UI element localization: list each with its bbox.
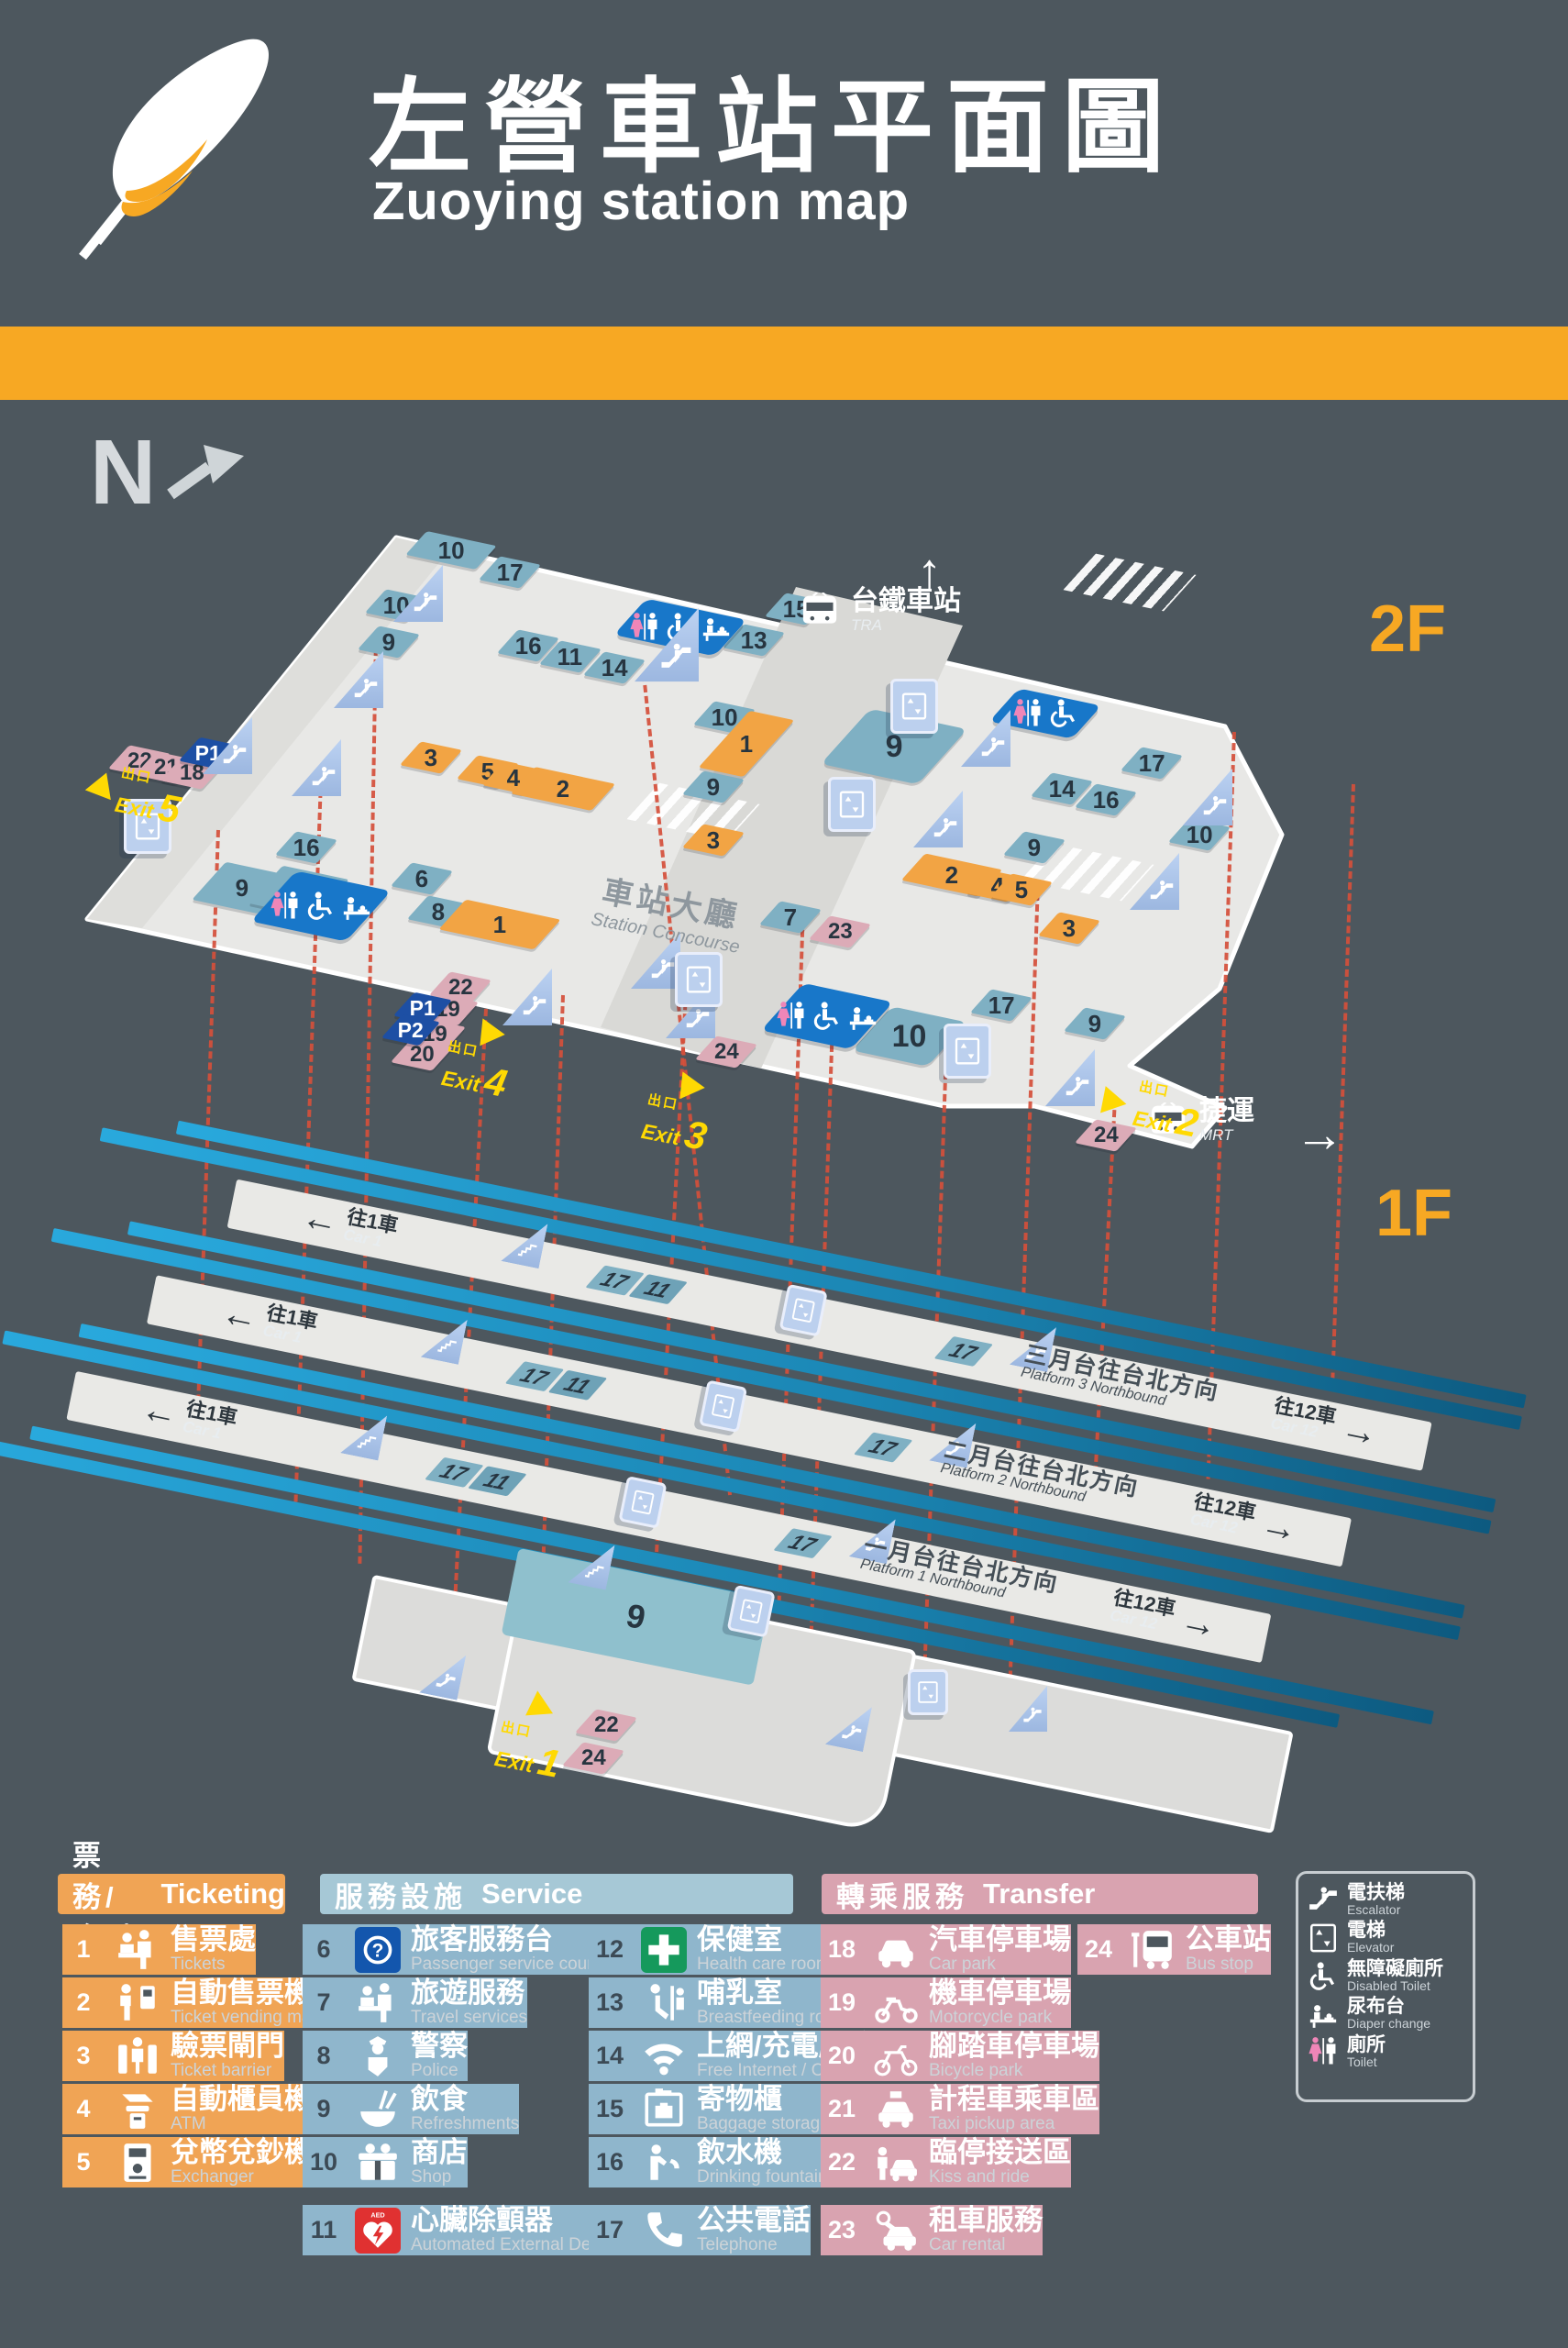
legend-number-badge: 8	[303, 2035, 345, 2077]
legend-number-badge: 13	[589, 1982, 631, 2024]
tra-direction-arrow: ↑	[917, 543, 942, 600]
toilet-icon	[1308, 2036, 1339, 2067]
car1-direction-label: ← 往1車Car 1	[218, 1294, 319, 1350]
legend-section-header: 票務/金融Ticketing	[58, 1874, 285, 1914]
legend-item: 15 寄物櫃Baggage storage	[589, 2084, 830, 2134]
rail-track	[127, 1221, 1496, 1512]
legend-icon	[355, 2208, 401, 2254]
legend-item: 9 飲食Refreshments	[303, 2084, 519, 2134]
car12-direction-label: 往12車Car 12 →	[1188, 1491, 1300, 1549]
legend-item: 11 心臟除顫器Automated External Defibrillator	[303, 2205, 657, 2255]
stairs-icon	[421, 1312, 468, 1364]
legend-number-badge: 21	[821, 2088, 863, 2131]
legend-number-badge: 18	[821, 1929, 863, 1971]
elevator-icon	[699, 1379, 747, 1433]
escalator-icon	[1010, 1320, 1056, 1372]
train-icon	[1148, 1102, 1188, 1139]
legend-icon	[873, 2087, 919, 2132]
mrt-link: 捷運MRT	[1148, 1097, 1254, 1145]
elevator-icon	[908, 1669, 948, 1715]
legend-icon	[355, 2140, 401, 2186]
legend-icon	[355, 2033, 401, 2079]
legend-number-badge: 12	[589, 1929, 631, 1971]
legend-number-badge: 7	[303, 1982, 345, 2024]
elevator-icon	[779, 1284, 828, 1337]
legend-item: 19 機車停車場Motorcycle park	[821, 1977, 1071, 2028]
escalator-icon	[849, 1512, 896, 1564]
legend-icon	[873, 2208, 919, 2254]
legend-icon	[115, 2087, 160, 2132]
legend-item: 10 商店Shop	[303, 2137, 468, 2187]
stairs-icon	[340, 1408, 387, 1460]
legend-number-badge: 23	[821, 2210, 863, 2252]
legend-section-header: 服務設施Service	[320, 1874, 793, 1914]
map-tile: 17	[425, 1457, 484, 1488]
legend-icon	[115, 1980, 160, 2026]
legend-item: 20 腳踏車停車場Bicycle park	[821, 2031, 1099, 2081]
left-arrow-icon: ←	[138, 1390, 181, 1434]
legend-number-badge: 2	[62, 1982, 105, 2024]
legend-icon	[355, 2087, 401, 2132]
legend-number-badge: 20	[821, 2035, 863, 2077]
platform-name: 三月台往台北方向Platform 3 Northbound	[1020, 1342, 1221, 1420]
floor-label-1f: 1F	[1375, 1176, 1452, 1251]
accent-band	[0, 327, 1568, 400]
legend-icon	[641, 1980, 687, 2026]
legend-number-badge: 5	[62, 2142, 105, 2184]
legend-item: 17 公共電話Telephone	[589, 2205, 811, 2255]
legend-item: 12 保健室Health care room	[589, 1924, 831, 1975]
zuoying-station-map-page: 左營車站平面圖 Zuoying station map N 2F 1F	[0, 0, 1568, 2348]
legend-number-badge: 15	[589, 2088, 631, 2131]
legend-number-badge: 16	[589, 2142, 631, 2184]
legend-icon	[641, 1927, 687, 1973]
legend-item: 6 旅客服務台Passenger service counter	[303, 1924, 617, 1975]
map-tile: 11	[628, 1274, 688, 1304]
page-subtitle: Zuoying station map	[372, 171, 910, 232]
legend-number-badge: 10	[303, 2142, 345, 2184]
north-arrow-icon	[161, 443, 246, 504]
legend-number-badge: 11	[303, 2210, 345, 2252]
legend-item: 3 驗票閘門Ticket barrier	[62, 2031, 284, 2081]
legend-item: 2 自動售票機Ticket vending machine	[62, 1977, 353, 2028]
legend-item: 16 飲水機Drinking fountain	[589, 2137, 828, 2187]
right-arrow-icon: →	[1257, 1506, 1300, 1549]
floor-label-2f: 2F	[1369, 592, 1446, 667]
legend-number-badge: 19	[821, 1982, 863, 2024]
north-indicator: N	[90, 420, 246, 526]
legend-item: 21 計程車乘車區Taxi pickup area	[821, 2084, 1099, 2134]
platform: ← 往1車Car 1 17 11 17 三月台往台北方向Platform 3 N…	[227, 1180, 1432, 1471]
legend-icon	[115, 1927, 160, 1973]
legend-number-badge: 22	[821, 2142, 863, 2184]
legend-icon	[641, 2208, 687, 2254]
diaper-change-icon	[1308, 1999, 1339, 2030]
legend-number-badge: 1	[62, 1929, 105, 1971]
north-label: N	[90, 420, 156, 526]
legend-number-badge: 14	[589, 2035, 631, 2077]
legend-icon	[873, 1980, 919, 2026]
legend-item: 5 兌幣兌鈔機Exchanger	[62, 2137, 313, 2187]
platform-name: 一月台往台北方向Platform 1 Northbound	[858, 1534, 1060, 1611]
legend-number-badge: 4	[62, 2088, 105, 2131]
platform-name: 二月台往台北方向Platform 2 Northbound	[939, 1438, 1141, 1516]
legend-number-badge: 9	[303, 2088, 345, 2131]
legend-number-badge: 17	[589, 2210, 631, 2252]
map-tile: 11	[548, 1370, 608, 1401]
legend-item: 22 臨停接送區Kiss and ride	[821, 2137, 1071, 2187]
escalator-icon	[1308, 1885, 1339, 1916]
left-arrow-icon: ←	[299, 1198, 342, 1241]
left-arrow-icon: ←	[218, 1294, 261, 1337]
legend-item: 13 哺乳室Breastfeeding room	[589, 1977, 849, 2028]
rail-track	[79, 1324, 1465, 1619]
legend-icon	[115, 2033, 160, 2079]
car1-direction-label: ← 往1車Car 1	[138, 1390, 238, 1445]
legend-icon	[115, 2140, 160, 2186]
legend-icon	[873, 2033, 919, 2079]
right-arrow-icon: →	[1338, 1410, 1381, 1453]
platform: ← 往1車Car 1 17 11 17 二月台往台北方向Platform 2 N…	[147, 1275, 1352, 1567]
legend-icon	[641, 2033, 687, 2079]
legend-number-badge: 3	[62, 2035, 105, 2077]
map-tile: 17	[585, 1266, 645, 1296]
legend-item: 8 警察Police	[303, 2031, 468, 2081]
elevator-icon	[618, 1476, 667, 1529]
legend-item: 4 自動櫃員機ATM	[62, 2084, 313, 2134]
hsr-train-logo	[72, 26, 292, 264]
map-tile: 17	[773, 1528, 833, 1558]
legend-icon	[641, 2140, 687, 2186]
map-tile: 17	[854, 1433, 913, 1463]
legend-icon	[873, 2140, 919, 2186]
car12-direction-label: 往12車Car 12 →	[1269, 1395, 1381, 1453]
rail-track	[51, 1228, 1492, 1534]
map-tile: 11	[468, 1466, 527, 1496]
stairs-icon	[501, 1216, 547, 1268]
legend-item: 1 售票處Tickets	[62, 1924, 256, 1975]
legend-icon	[355, 1980, 401, 2026]
map-tile: 17	[934, 1336, 994, 1367]
legend-icon	[355, 1927, 401, 1973]
map-tile: 17	[505, 1361, 565, 1391]
legend-number-badge: 6	[303, 1929, 345, 1971]
legend-item: 23 租車服務Car rental	[821, 2205, 1043, 2255]
escalator-icon	[929, 1415, 976, 1467]
mrt-direction-arrow: →	[1295, 1106, 1344, 1163]
legend-item: 14 上網/充電服務Free Internet / Charging	[589, 2031, 882, 2081]
legend-icon	[641, 2087, 687, 2132]
elevator-icon	[1308, 1922, 1339, 1954]
floor-2f-plate	[55, 514, 1339, 1211]
car12-direction-label: 往12車Car 12 →	[1109, 1588, 1220, 1645]
car1-direction-label: ← 往1車Car 1	[299, 1198, 400, 1254]
right-arrow-icon: →	[1177, 1601, 1220, 1645]
train-icon	[800, 593, 840, 629]
legend-icon	[873, 1927, 919, 1973]
legend-item: 7 旅遊服務Travel services	[303, 1977, 527, 2028]
facility-info-box: 電扶梯Escalator 電梯Elevator 無障礙廁所Disabled To…	[1296, 1871, 1475, 2102]
wheelchair-icon	[1308, 1961, 1339, 1992]
